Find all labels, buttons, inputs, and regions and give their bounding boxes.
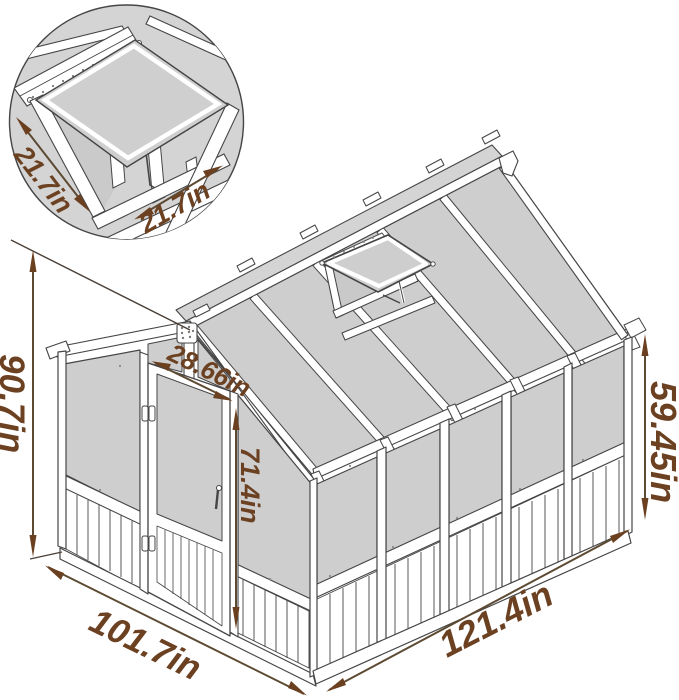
- svg-text:71.4in: 71.4in: [235, 447, 265, 524]
- svg-text:59.45in: 59.45in: [643, 381, 679, 503]
- svg-text:90.7in: 90.7in: [0, 354, 31, 453]
